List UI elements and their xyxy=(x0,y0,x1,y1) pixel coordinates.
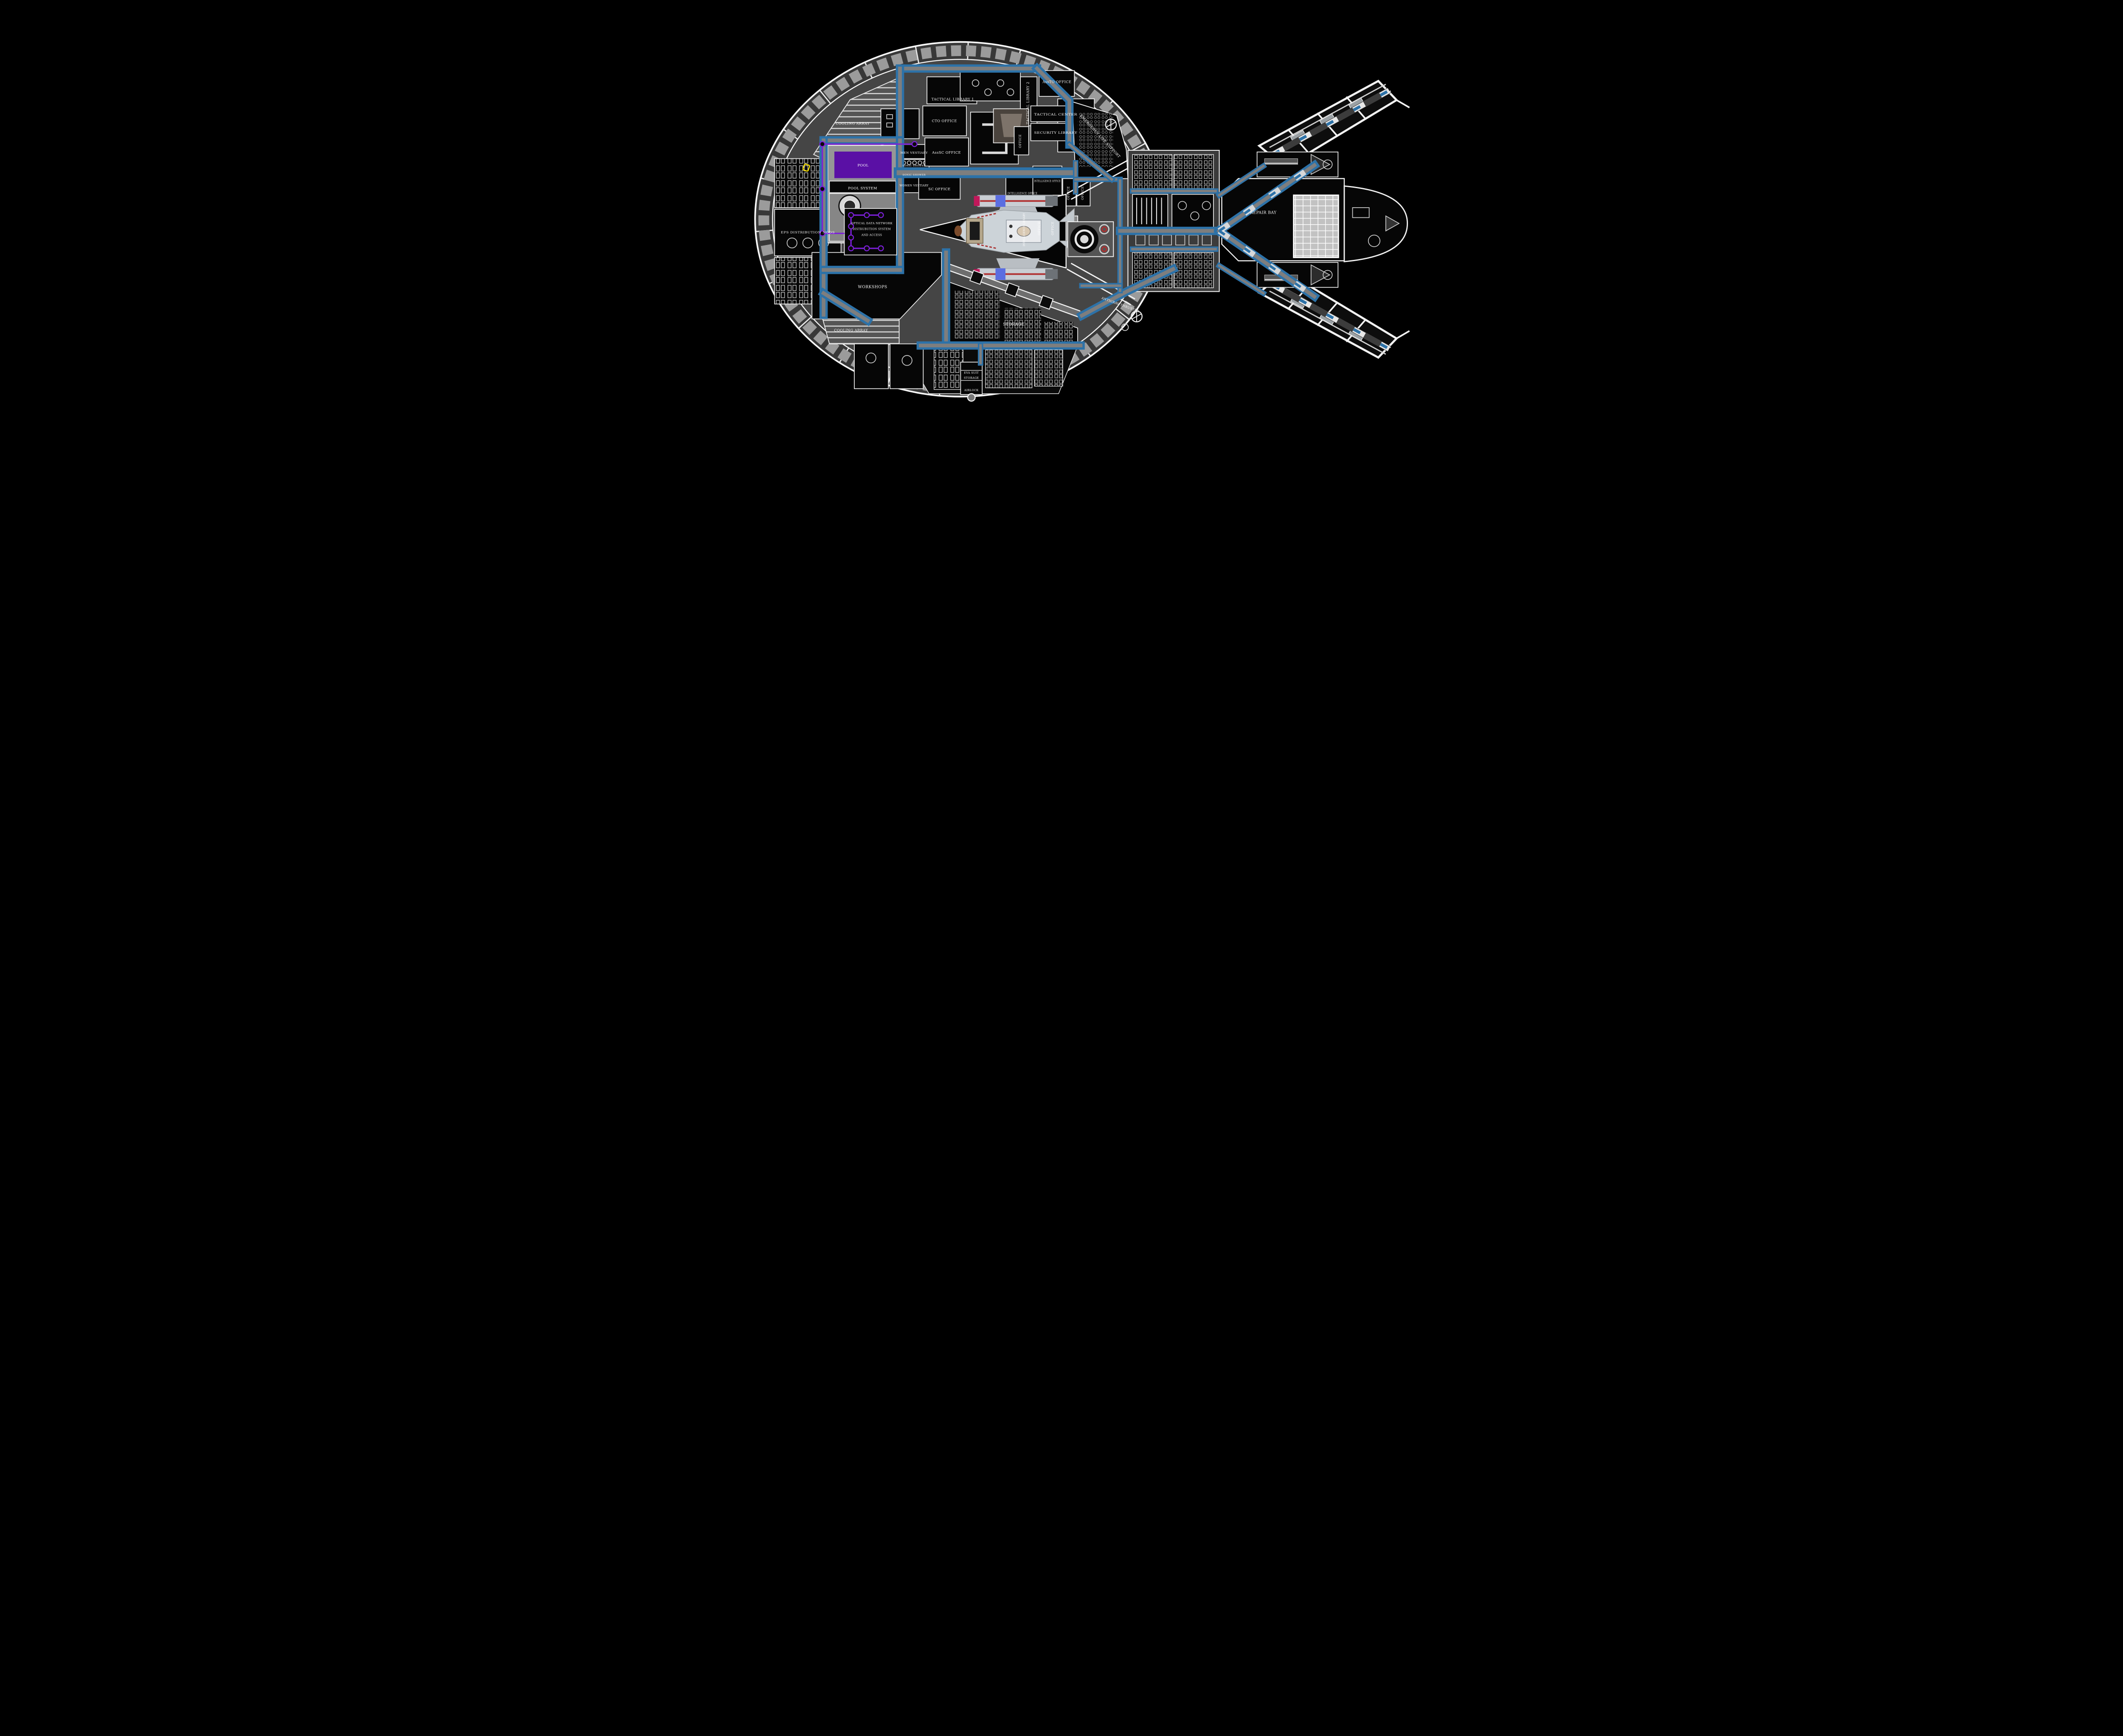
label-intelligence-office: INTELLIGENCE OFFICE xyxy=(1008,192,1037,195)
equipment-room xyxy=(985,349,1032,388)
label-office: OFFICE xyxy=(1037,222,1041,235)
label-repair-bay: REPAIR BAY xyxy=(1250,211,1277,215)
repair-platform-grid xyxy=(1294,195,1339,258)
deck-plan-stage: TACTICAL LIBRARY 1 TACTICAL LIBRARY 2 As… xyxy=(705,0,1418,424)
label-men-vestiary: MEN VESTIARY xyxy=(901,152,928,155)
engineering-crew-room xyxy=(1174,155,1214,189)
label-sc-office: SC OFFICE xyxy=(928,187,950,191)
equipment-room xyxy=(1034,349,1062,386)
label-odn-line1: OPTICAL DATA NETWORK xyxy=(851,222,893,225)
label-airlock: AIRLOCK xyxy=(964,389,979,392)
label-sonic-shower: SONIC SHOWER xyxy=(902,165,926,167)
label-office: OFFICE xyxy=(1067,186,1070,200)
maintenance-office xyxy=(890,344,923,389)
label-cto-office: CTO OFFICE xyxy=(932,118,957,123)
label-tactical-center: TACTICAL CENTER xyxy=(1034,113,1077,116)
label-cooling-array-upper: COOLING ARRAY xyxy=(836,121,870,125)
label-intelligence-library: INTELLIGENCE LIBRARY xyxy=(1023,213,1026,246)
label-tactical-library-1: TACTICAL LIBRARY 1 xyxy=(932,97,974,101)
label-office: OFFICE xyxy=(1081,186,1084,200)
label-eva-suit-line1: EVA SUIT xyxy=(964,372,979,375)
label-odn-line3: AND ACCESS xyxy=(861,234,882,237)
label-women-vestiary: WOMEN VESTIARY xyxy=(900,184,929,187)
label-tactical-library-2: TACTICAL LIBRARY 2 xyxy=(1026,82,1030,124)
equipment-room xyxy=(934,348,963,389)
plasma-slat-room xyxy=(1132,194,1168,228)
briefing-hall-room xyxy=(960,68,1020,101)
engineering-crew-room xyxy=(1174,253,1214,288)
label-asssc-office: AssSC OFFICE xyxy=(932,150,961,155)
engineering-crew-room xyxy=(1132,155,1172,189)
deck-plan-canvas: TACTICAL LIBRARY 1 TACTICAL LIBRARY 2 As… xyxy=(705,0,1418,424)
label-intelligence-office-2: INTELLIGENCE OFFICE xyxy=(1034,180,1061,183)
label-eva-suit-line2: STORAGE xyxy=(964,377,979,380)
label-workshops: WORKSHOPS xyxy=(858,285,887,290)
label-office: OFFICE xyxy=(1018,134,1022,148)
label-pool-system: POOL SYSTEM xyxy=(848,186,877,190)
label-storage: STORAGE xyxy=(1003,322,1025,327)
label-cooling-array-lower: COOLING ARRAY xyxy=(834,328,868,332)
airlock-hatch xyxy=(968,394,975,401)
maintenance-office xyxy=(854,344,888,389)
console-room xyxy=(1172,194,1214,228)
transporter-room xyxy=(1068,222,1114,256)
label-security-library: SECURITY LIBRARY xyxy=(1034,131,1077,135)
label-sonic-shower-2: SONIC SHOWER xyxy=(902,174,926,177)
label-odn-line2: DISTRUBUTION SYSTEM xyxy=(853,228,891,231)
label-eps-distribution-nods: EPS DISTRIBUTION NODS xyxy=(781,231,835,234)
storage-containers xyxy=(954,291,1000,340)
label-office: OFFICE xyxy=(1050,222,1054,235)
label-pool: POOL xyxy=(857,163,868,167)
storage-containers xyxy=(1043,322,1073,344)
label-assto-office: AssTO OFFICE xyxy=(1042,80,1071,84)
